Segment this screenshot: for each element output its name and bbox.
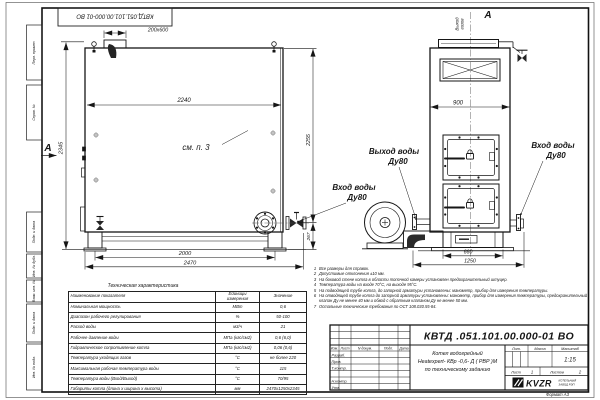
dim-2240: 2240 [176,98,191,104]
margin-column-labels: Перв. примен. Справ. № Подп. и дата Инв.… [32,41,36,379]
table-row: Диапазон рабочего регулирования%50-100 [69,312,307,322]
col-header: N докум. [358,347,372,351]
param-unit: °С [216,364,260,374]
margin-label: Перв. примен. [32,41,36,65]
table-row: Номинальная мощностьМВт0,6 [69,302,307,312]
dim-200x600: 200x600 [147,28,168,34]
note-text: Допустимые отклонения ±10 мм. [319,271,589,276]
air-valve-icon [517,50,528,62]
product-name: Котел водогрейный [432,350,482,357]
pedestal [432,232,514,251]
param-name: Температура уходящих газов [69,353,216,363]
param-unit: мм [216,384,260,394]
doc-number: КВТД .051.101.00.000-01 ВО [424,331,574,343]
format-note: Формат А3 [546,392,570,397]
dim-900: 900 [453,100,464,106]
fan-duct [404,231,444,248]
margin-label: Справ. № [32,104,36,120]
inlet-valve-icon [286,213,306,230]
sig-row-label: Пров. [332,360,342,364]
product-name: Heatexpert- КВр -0,6- Д ( РВР )М [418,359,498,365]
param-unit: МПа (кгс/см2) [216,333,260,343]
scale-label: Масштаб [561,347,580,351]
param-name: Рабочее давление воды [69,333,216,343]
margin-label: Инв. № подл. [32,356,36,378]
note-text: На отводящей трубе котла до запорной арм… [319,293,589,303]
margin-column [27,25,43,390]
sig-row-label: Т.контр. [332,366,347,370]
table-row: Температура воды (Вход/Выход)°С70/95 [69,374,307,384]
param-unit: °С [216,353,260,363]
gas-outlet-window [440,59,500,81]
margin-label: Подп. и дата [32,312,36,335]
param-name: Расход воды [69,323,216,333]
col-header: Наименование показателя [69,291,216,302]
sig-row-label: Разраб. [332,353,346,357]
padlock-icon [467,150,474,159]
water-inlet-flange [510,215,524,231]
param-value: 50-100 [260,312,307,322]
view-a-front: А [483,10,491,21]
dim-2345: 2345 [59,141,65,155]
col-header: Дата [398,347,408,351]
table-row: Габариты котла (длина х ширина х высота)… [69,384,307,394]
table-row: Максимальная рабочая температура воды°С1… [69,364,307,374]
note-item: 3На боковой стене котла в области топочн… [311,277,589,282]
margin-label: Подп. и дата [32,221,36,244]
note-number: 6 [311,293,319,303]
fan-blower [362,202,408,249]
note-number: 1 [311,266,319,271]
door-upper [443,135,499,180]
param-value: 0,06 (0,6) [260,343,307,353]
dim-2470: 2470 [183,260,197,266]
param-unit: м3/ч [216,323,260,333]
sheet-value: 1 [531,370,533,375]
tech-characteristics: Техническая характеристика Наименование … [68,283,306,395]
note-item: 7Остальные технические требования по ОСТ… [311,304,589,309]
table-row: Рабочее давление водыМПа (кгс/см2)0,6 (6… [69,333,307,343]
door-lower [443,184,499,228]
note-text: Температура воды на входе 70°С, на выход… [319,282,589,287]
top-stamp-number: КВТД.051.101.00.000-01 ВО [76,13,153,19]
company-logo-icon [513,378,524,388]
sig-row-label: Н.контр. [332,379,348,383]
dimensions [61,31,524,270]
note-item: 6На отводящей трубе котла до запорной ар… [311,293,589,303]
drawing-sheet: Перв. примен. Справ. № Подп. и дата Инв.… [0,0,600,400]
margin-label: Взам. инв. № [32,280,36,302]
param-name: Гидравлическое сопротивление котла [69,343,216,353]
dim-1250: 1250 [464,258,476,264]
param-value: 115 [260,364,307,374]
dim-660: 660 [464,249,473,255]
param-unit: МПа (кгс/см2) [216,343,260,353]
note-text: На боковой стене котла в области топочно… [319,277,589,282]
dim-2000: 2000 [178,251,192,257]
sheet-label: Лист [510,371,521,375]
note-text: На подводящей трубе котла, до запорной а… [319,288,589,293]
dim-267: 267 [306,232,312,241]
water-outlet-label: Ду80 [387,157,408,166]
mass-label: Масса [534,347,545,351]
technical-notes: 1Все размеры для справок. 2Допустимые от… [311,266,589,309]
note-item: 1Все размеры для справок. [311,266,589,271]
table-row: Расход водым3/ч21 [69,323,307,333]
water-outlet-label: Выход воды [369,147,419,156]
note-number: 2 [311,271,319,276]
lit-label: Лит. [511,347,521,351]
param-value: 0,6 [260,302,307,312]
reference-markers [93,130,276,194]
scale-value: 1:15 [564,358,576,364]
chimney-collar [439,40,521,53]
drain-valve-icon [96,217,104,231]
sheets-value: 2 [578,370,582,375]
title-block: КВТД .051.101.00.000-01 ВО Изм. Лист N д… [330,325,588,390]
tech-table-title: Техническая характеристика [68,283,218,289]
see-note-label: см. п. 3 [182,143,210,152]
side-feet [84,232,286,251]
table-header-row: Наименование показателя Единицы измерени… [69,291,307,302]
param-value: 70/95 [260,374,307,384]
note-number: 4 [311,282,319,287]
front-view [362,12,530,258]
gas-outlet-label: газов [460,18,465,30]
product-name: по техническому заданию [425,367,490,373]
water-inlet-label: Вход воды [332,183,375,192]
note-item: 5На подводящей трубе котла, до запорной … [311,288,589,293]
note-text: Все размеры для справок. [319,266,589,271]
view-a-side: А [43,143,51,154]
note-number: 3 [311,277,319,282]
tech-table: Наименование показателя Единицы измерени… [68,291,307,396]
water-inlet-label: Ду80 [545,151,566,160]
sig-row-label: Утв. [332,386,341,390]
table-row: Гидравлическое сопротивление котлаМПа (к… [69,343,307,353]
col-header: Единицы измерения [216,291,260,302]
param-value: 0,6 (6,0) [260,333,307,343]
water-inlet-label: Ду80 [346,193,367,202]
param-unit: % [216,312,260,322]
water-inlet-label: Вход воды [531,141,574,150]
note-number: 5 [311,288,319,293]
param-name: Номинальная мощность [69,302,216,312]
margin-label: Инв. № дубл. [32,255,36,277]
col-header: Подп. [384,347,393,351]
param-unit: °С [216,374,260,384]
logo-text: KVZR [526,379,552,389]
param-value: 2470х1250х2345 [260,384,307,394]
param-name: Максимальная рабочая температура воды [69,364,216,374]
param-value: 21 [260,323,307,333]
table-row: Температура уходящих газов°Сне более 220 [69,353,307,363]
note-number: 7 [311,304,319,309]
col-header: Лист [339,347,349,351]
param-name: Габариты котла (длина х ширина х высота) [69,384,216,394]
param-unit: МВт [216,302,260,312]
note-item: 4Температура воды на входе 70°С, на выхо… [311,282,589,287]
param-name: Диапазон рабочего регулирования [69,312,216,322]
top-reference-stamp: КВТД.051.101.00.000-01 ВО [58,8,172,26]
company-name: ЗАВОД РЭП [559,382,576,386]
lifting-lug-icon [92,42,277,53]
param-value: не более 220 [260,353,307,363]
col-header: Изм. [331,347,338,351]
note-text: Остальные технические требования по ОСТ … [319,304,589,309]
note-item: 2Допустимые отклонения ±10 мм. [311,271,589,276]
col-header: Значение [260,291,307,302]
param-name: Температура воды (Вход/Выход) [69,374,216,384]
sheets-label: Листов [549,371,564,375]
flue-stub [104,40,126,58]
padlock-icon [467,199,474,208]
dim-2255: 2255 [306,134,312,147]
